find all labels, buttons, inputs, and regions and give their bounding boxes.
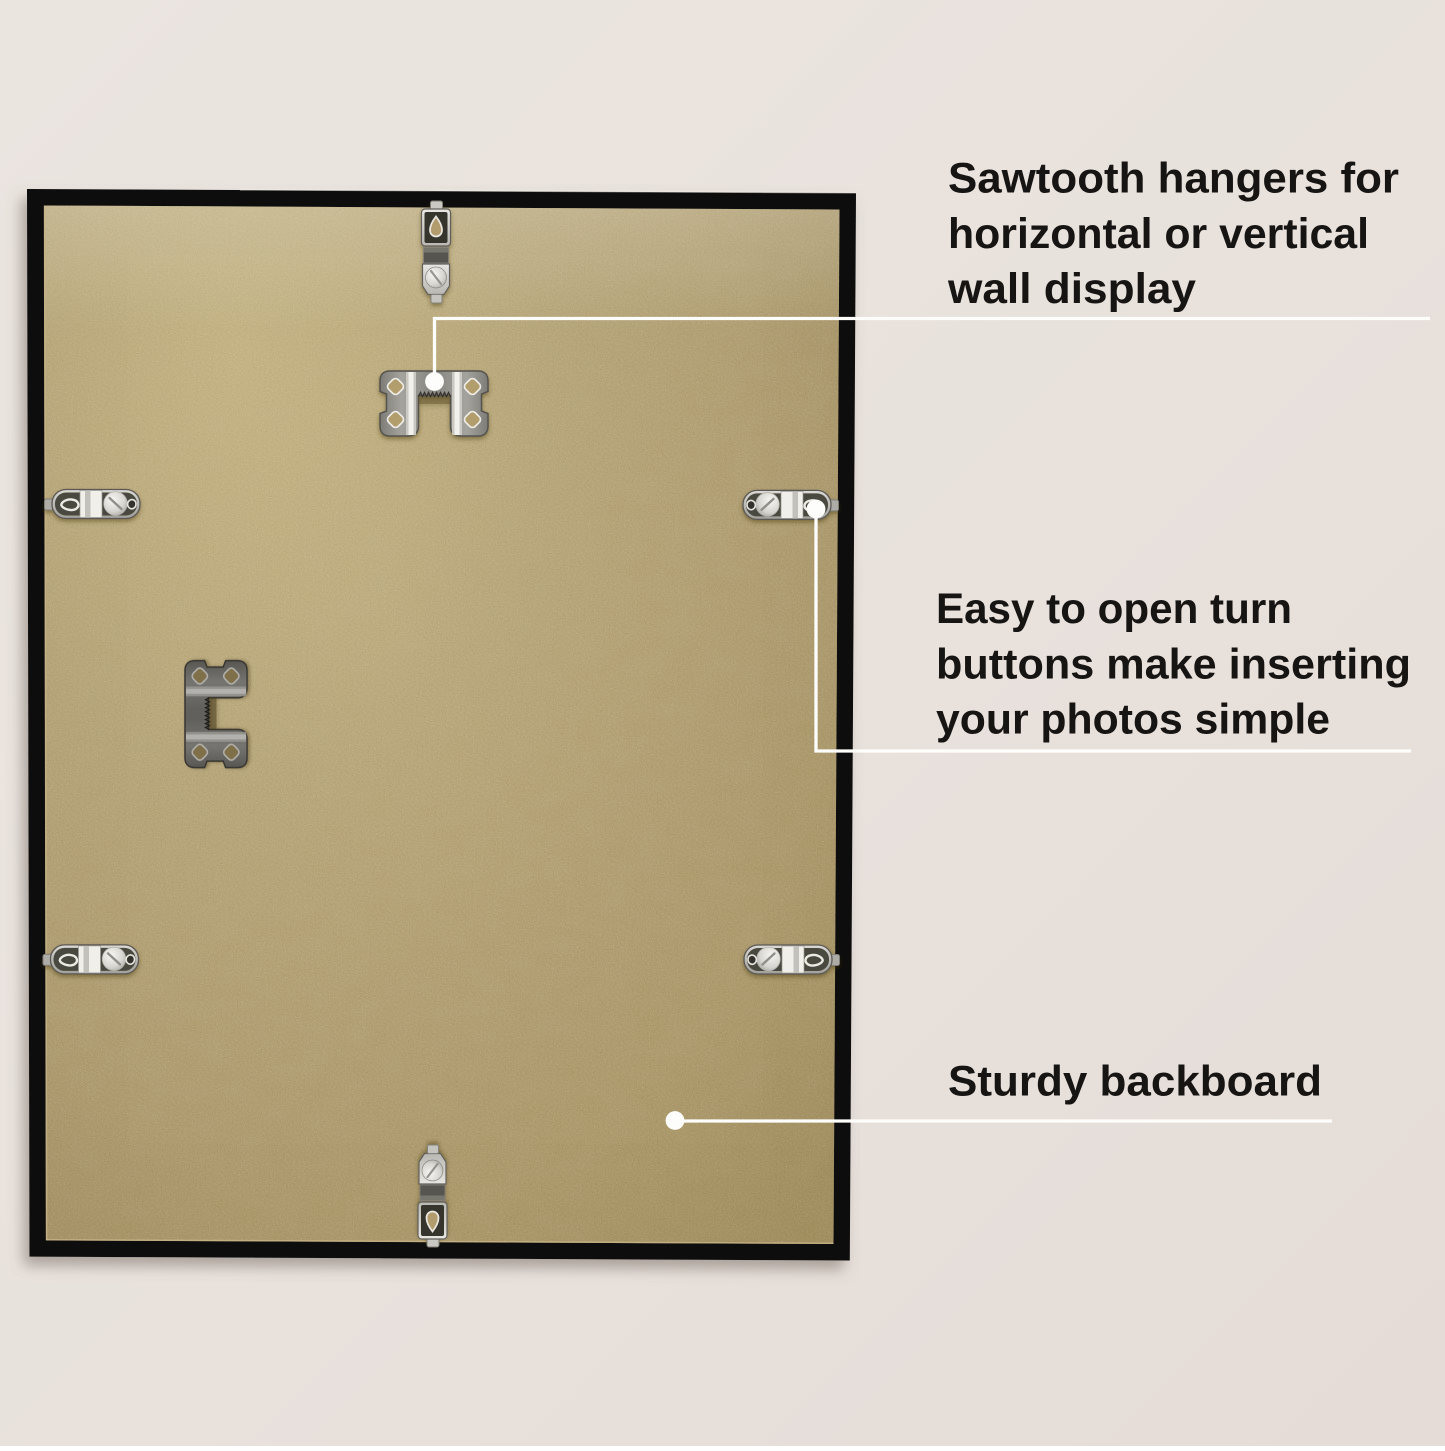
- svg-text:your photos simple: your photos simple: [936, 696, 1330, 744]
- svg-text:horizontal or vertical: horizontal or vertical: [948, 210, 1369, 258]
- svg-text:Sturdy backboard: Sturdy backboard: [948, 1058, 1322, 1106]
- svg-text:buttons make inserting: buttons make inserting: [936, 640, 1411, 688]
- svg-text:wall display: wall display: [947, 265, 1196, 313]
- svg-text:Sawtooth hangers for: Sawtooth hangers for: [948, 155, 1399, 203]
- svg-text:Easy to open turn: Easy to open turn: [936, 585, 1292, 633]
